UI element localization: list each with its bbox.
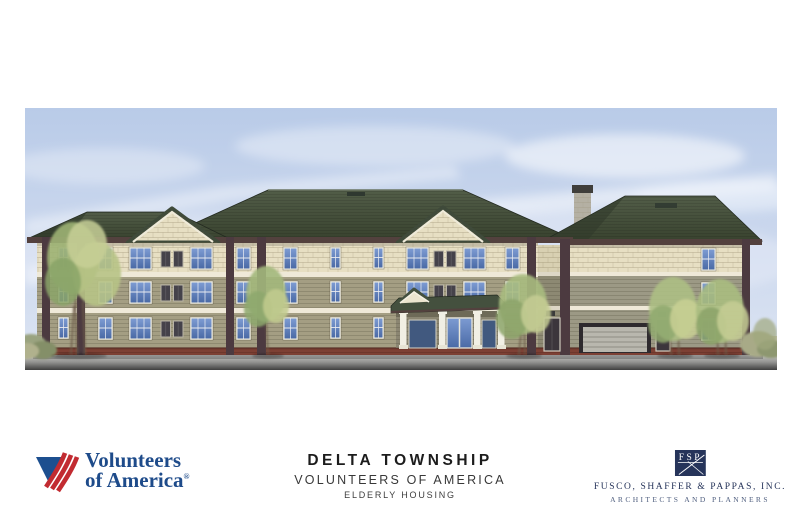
- voa-flag-icon: [34, 448, 80, 496]
- window: [190, 317, 213, 340]
- architect-logo: FSP FUSCO, SHAFFER & PAPPAS, INC. ARCHIT…: [594, 450, 786, 504]
- window: [283, 317, 298, 340]
- window: [373, 247, 384, 269]
- window: [701, 248, 716, 271]
- fsp-monogram-text: FSP: [678, 453, 701, 463]
- fascia: [568, 239, 762, 245]
- window: [330, 247, 341, 269]
- window: [283, 247, 298, 270]
- project-title: DELTA TOWNSHIP: [294, 452, 506, 470]
- garage-door: [579, 323, 651, 353]
- footer: Volunteers of America® DELTA TOWNSHIP VO…: [0, 370, 800, 517]
- fsp-monogram-icon: FSP: [674, 450, 705, 476]
- voa-wordmark: Volunteers of America®: [85, 451, 190, 490]
- voa-logo: Volunteers of America®: [34, 448, 190, 496]
- window: [505, 247, 520, 270]
- building-rendering: [25, 108, 777, 370]
- window: [190, 247, 213, 270]
- window: [373, 281, 384, 303]
- elevation-drawing: [25, 108, 777, 370]
- project-type: ELDERLY HOUSING: [294, 490, 506, 500]
- fascia: [27, 237, 573, 243]
- window: [129, 247, 152, 270]
- window: [98, 317, 113, 340]
- project-client: VOLUNTEERS OF AMERICA: [294, 473, 506, 487]
- architect-firm-name: FUSCO, SHAFFER & PAPPAS, INC.: [594, 482, 786, 492]
- entrance-portico: [391, 289, 506, 349]
- roof-vent: [347, 192, 365, 196]
- window: [373, 317, 384, 339]
- window: [330, 281, 341, 303]
- window: [330, 317, 341, 339]
- registered-mark: ®: [184, 472, 190, 481]
- window: [406, 247, 429, 270]
- title-block: DELTA TOWNSHIP VOLUNTEERS OF AMERICA ELD…: [294, 452, 506, 500]
- window: [463, 247, 486, 270]
- window: [129, 317, 152, 340]
- presentation-board: Volunteers of America® DELTA TOWNSHIP VO…: [0, 0, 800, 517]
- architect-tagline: ARCHITECTS AND PLANNERS: [594, 495, 786, 504]
- window: [190, 281, 213, 304]
- roof-vent: [655, 203, 677, 208]
- window: [236, 247, 251, 270]
- window: [129, 281, 152, 304]
- window: [58, 317, 69, 339]
- voa-line2: of America®: [85, 471, 190, 491]
